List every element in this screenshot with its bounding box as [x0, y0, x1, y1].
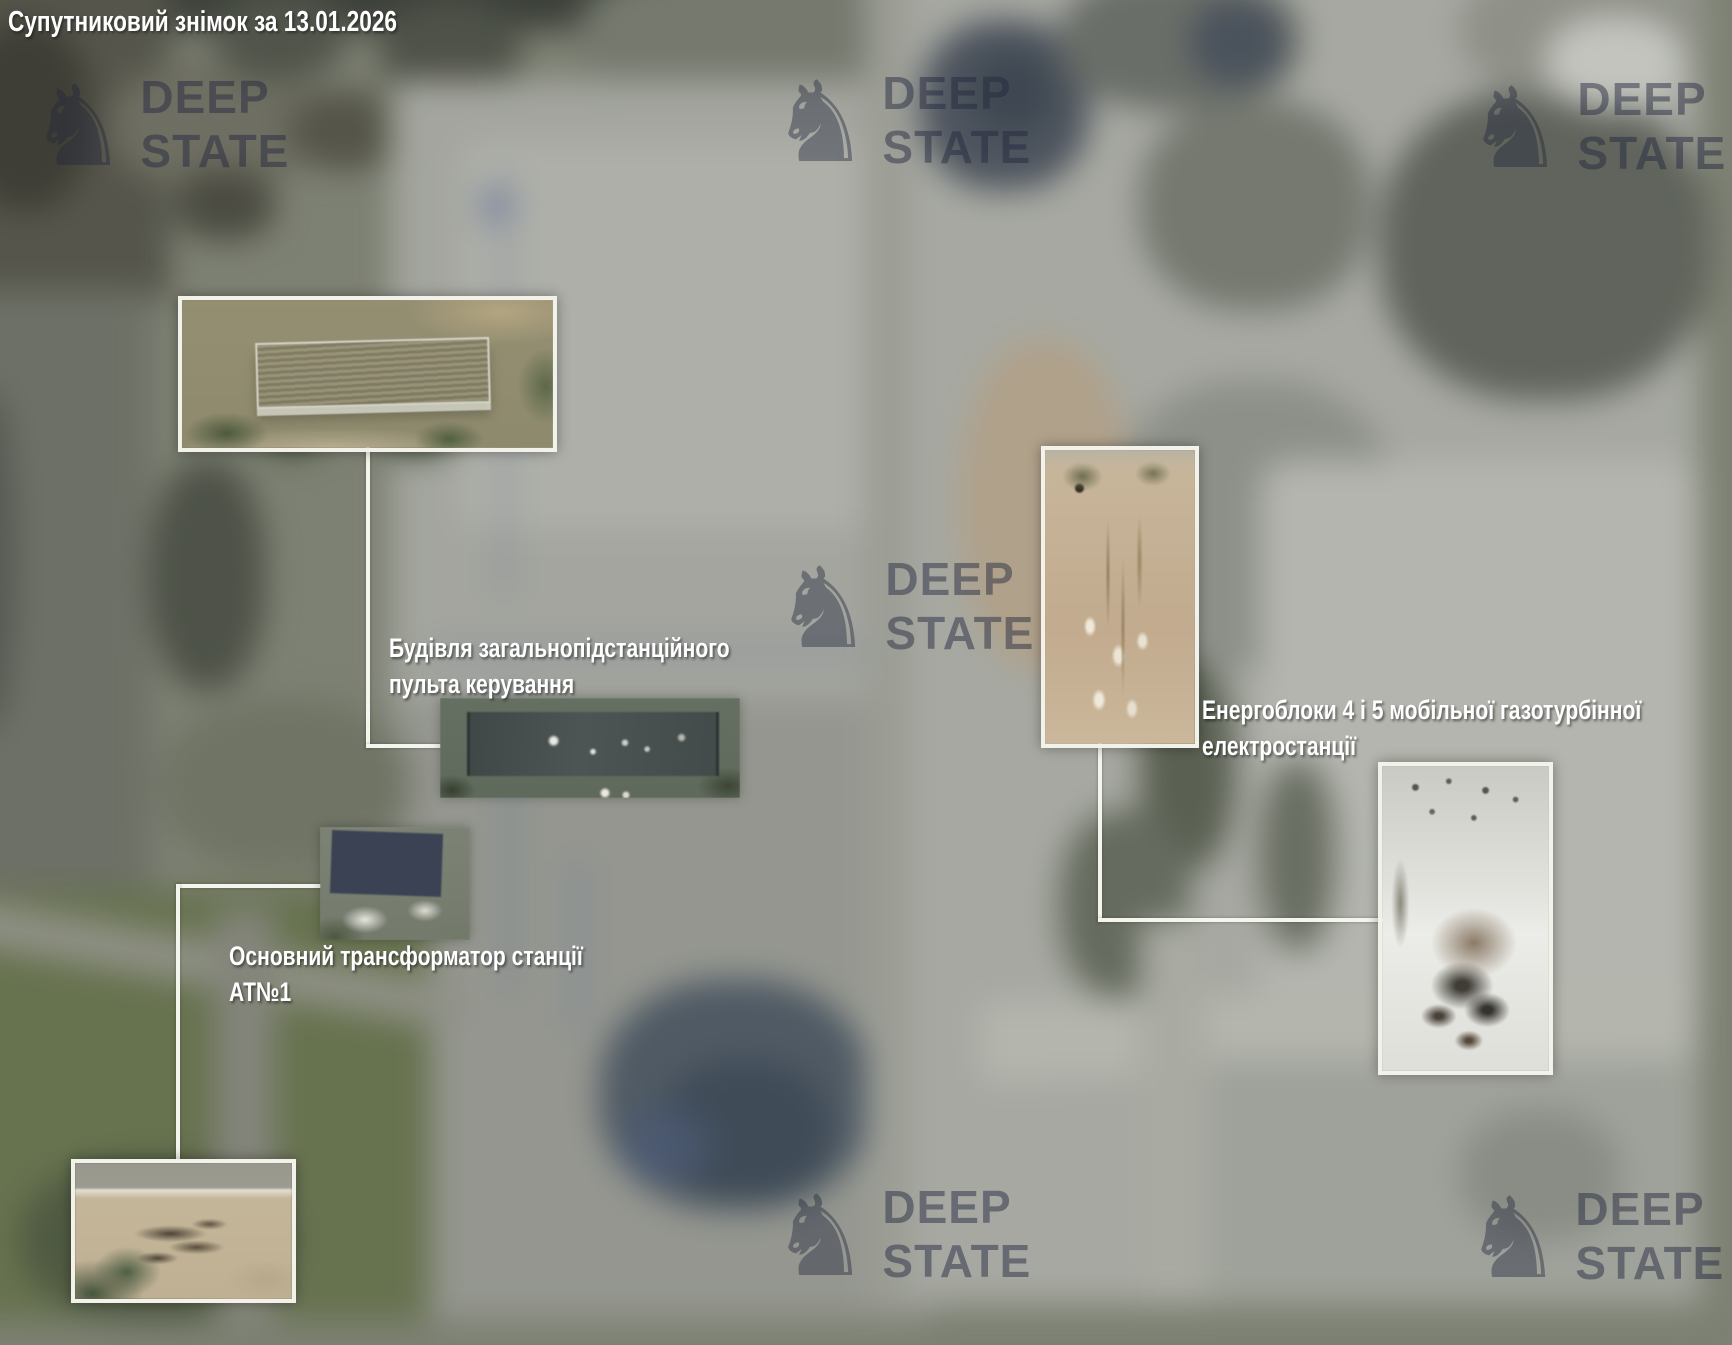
callout-text-line: електростанції: [1202, 728, 1641, 764]
terrain-blob: [1140, 100, 1370, 310]
satellite-texture: [75, 1163, 292, 1299]
callout-text-line: Основний трансформатор станції: [229, 938, 583, 974]
callout-text-line: Енергоблоки 4 і 5 мобільної газотурбінно…: [1202, 692, 1641, 728]
callout-line-transformer-vertical: [176, 884, 180, 1163]
callout-label-power-units: Енергоблоки 4 і 5 мобільної газотурбінно…: [1202, 692, 1641, 764]
callout-label-control-building: Будівля загальнопідстанційного пульта ке…: [389, 630, 730, 702]
terrain-blob: [150, 460, 265, 690]
inset-main-transformer-closeup: [320, 827, 470, 940]
transformer-building: [329, 830, 442, 897]
terrain-blob: [620, 1110, 710, 1180]
terrain-blob: [1140, 920, 1205, 1305]
callout-label-main-transformer: Основний трансформатор станції АТ№1: [229, 938, 583, 1010]
satellite-background: [0, 0, 1732, 1345]
inset-trench-area-closeup: [71, 1159, 296, 1303]
callout-line-transformer-horizontal: [176, 884, 324, 888]
callout-text-line: Будівля загальнопідстанційного: [389, 630, 730, 666]
terrain-blob: [175, 170, 275, 240]
control-building-roof: [467, 712, 719, 776]
inset-power-units-closeup: [1378, 762, 1553, 1075]
callout-line-control-vertical: [366, 446, 370, 748]
satellite-texture: [1045, 450, 1195, 744]
terrain-blob: [1380, 90, 1710, 400]
terrain-blob: [970, 50, 1055, 135]
terrain-blob: [1190, 0, 1285, 85]
terrain-blob: [1460, 1110, 1620, 1240]
callout-line-control-horizontal: [366, 744, 444, 748]
inset-revetments-closeup: [1041, 446, 1199, 748]
terrain-blob: [1545, 15, 1685, 110]
inset-substation-building-closeup: [178, 296, 557, 452]
terrain-blob: [480, 190, 512, 222]
terrain-blob: [290, 90, 400, 170]
satellite-annotation-graphic: Супутниковий знімок за 13.01.2026 ♞ DEEP…: [0, 0, 1732, 1345]
inset-control-building-closeup: [440, 698, 740, 798]
dark-roof-building: [255, 337, 491, 409]
callout-text-line: пульта керування: [389, 666, 730, 702]
callout-line-powerunits-vertical: [1098, 738, 1102, 922]
image-date-caption: Супутниковий знімок за 13.01.2026: [8, 6, 397, 38]
callout-text-line: АТ№1: [229, 974, 583, 1010]
terrain-blob: [0, 290, 150, 930]
satellite-texture: [1382, 766, 1549, 1071]
callout-line-powerunits-horizontal: [1098, 918, 1384, 922]
